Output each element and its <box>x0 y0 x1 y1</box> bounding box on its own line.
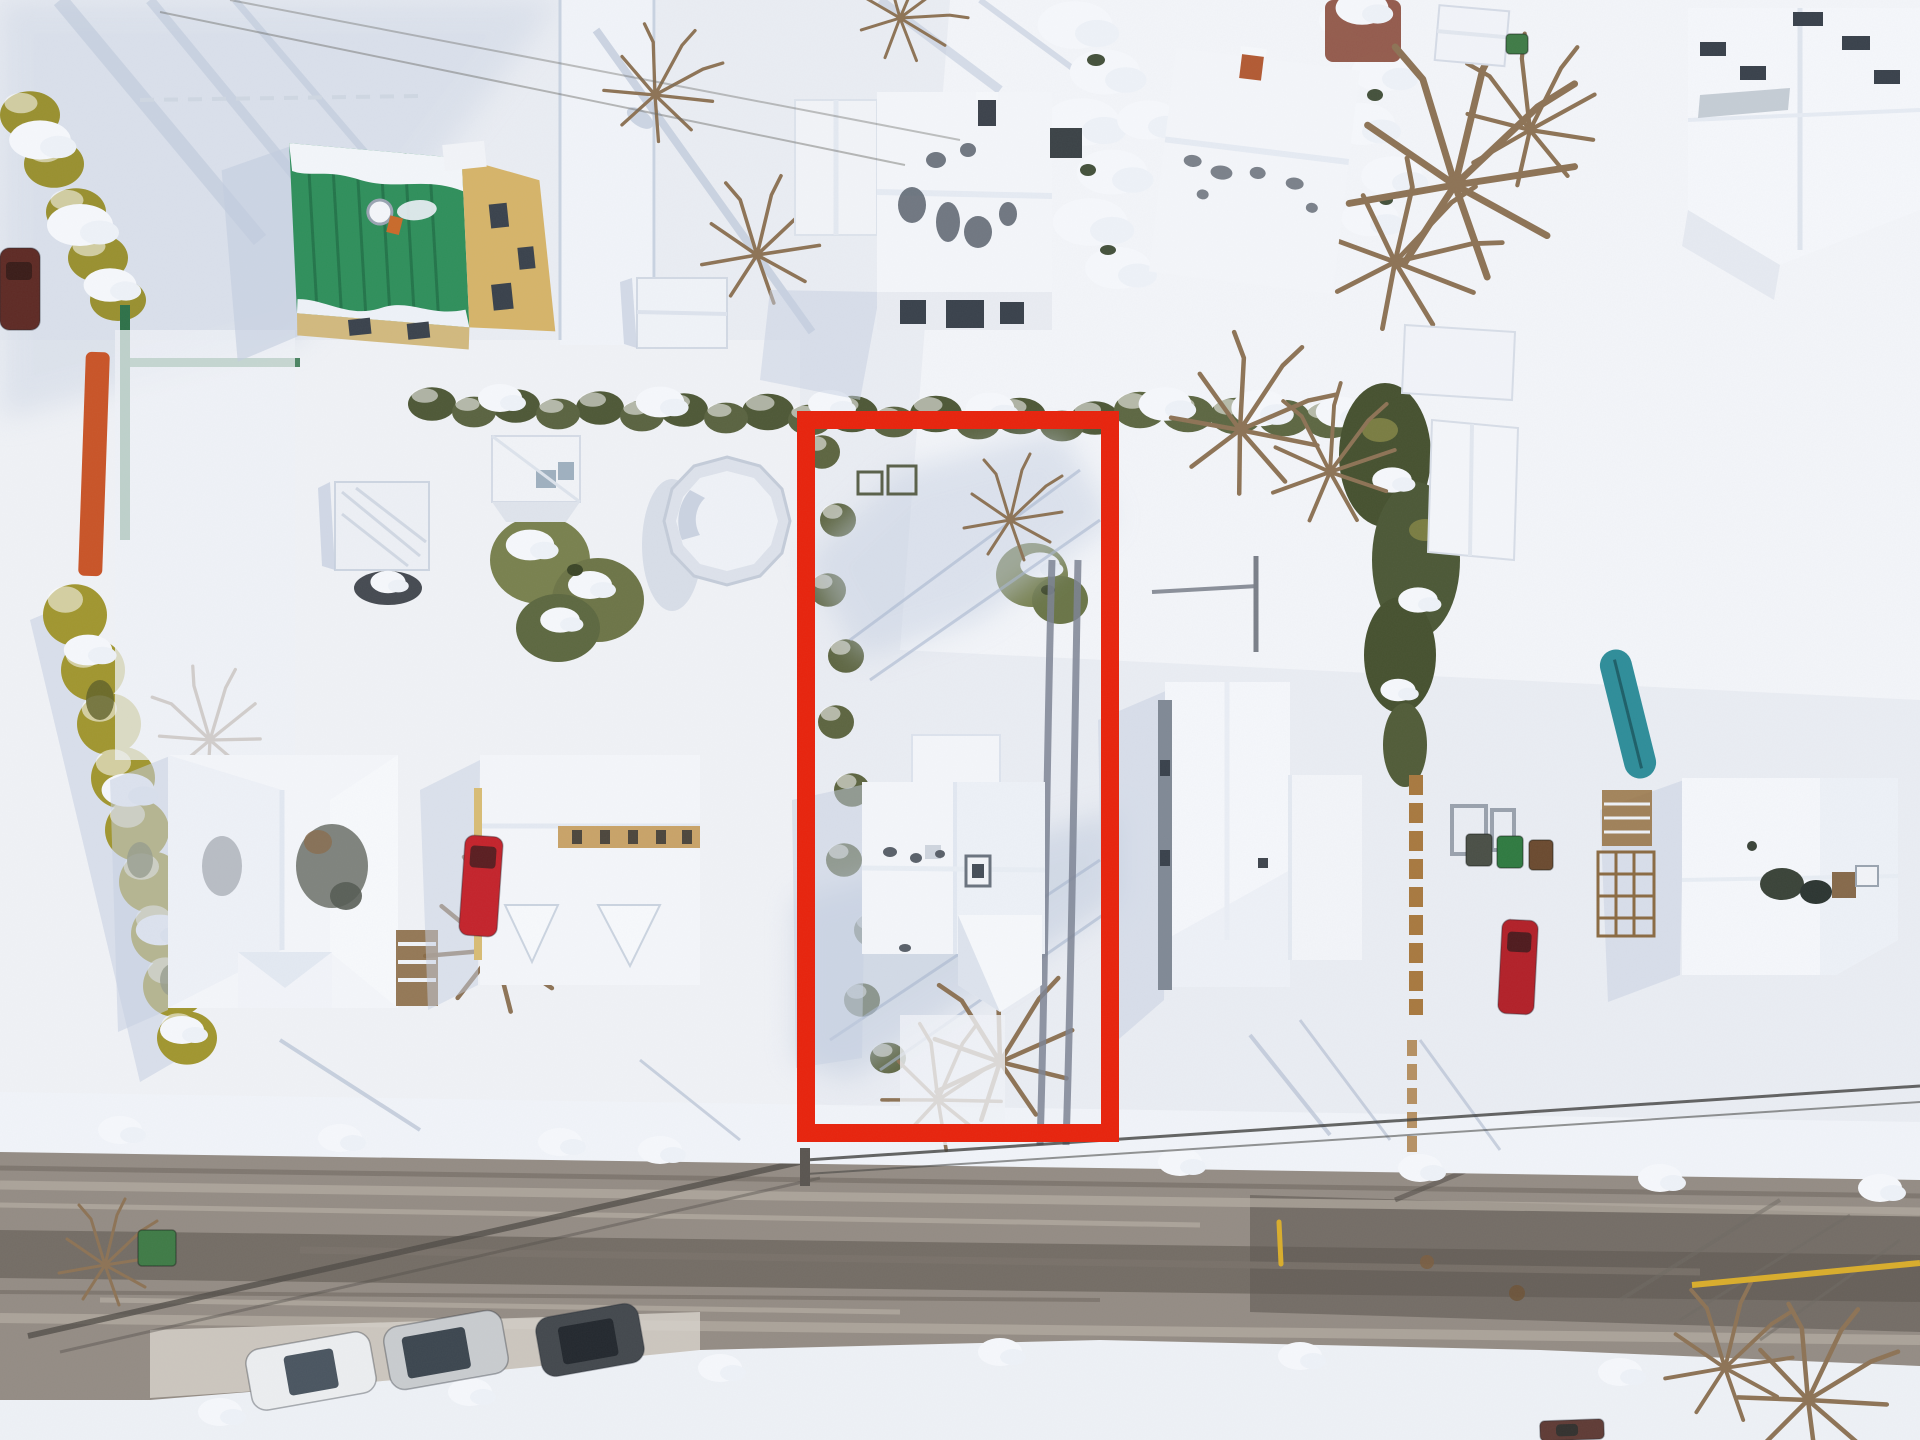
aerial-winter-neighborhood-photo <box>0 0 1920 1440</box>
aerial-photo-stage <box>0 0 1920 1440</box>
photo-grain <box>0 0 1920 1440</box>
